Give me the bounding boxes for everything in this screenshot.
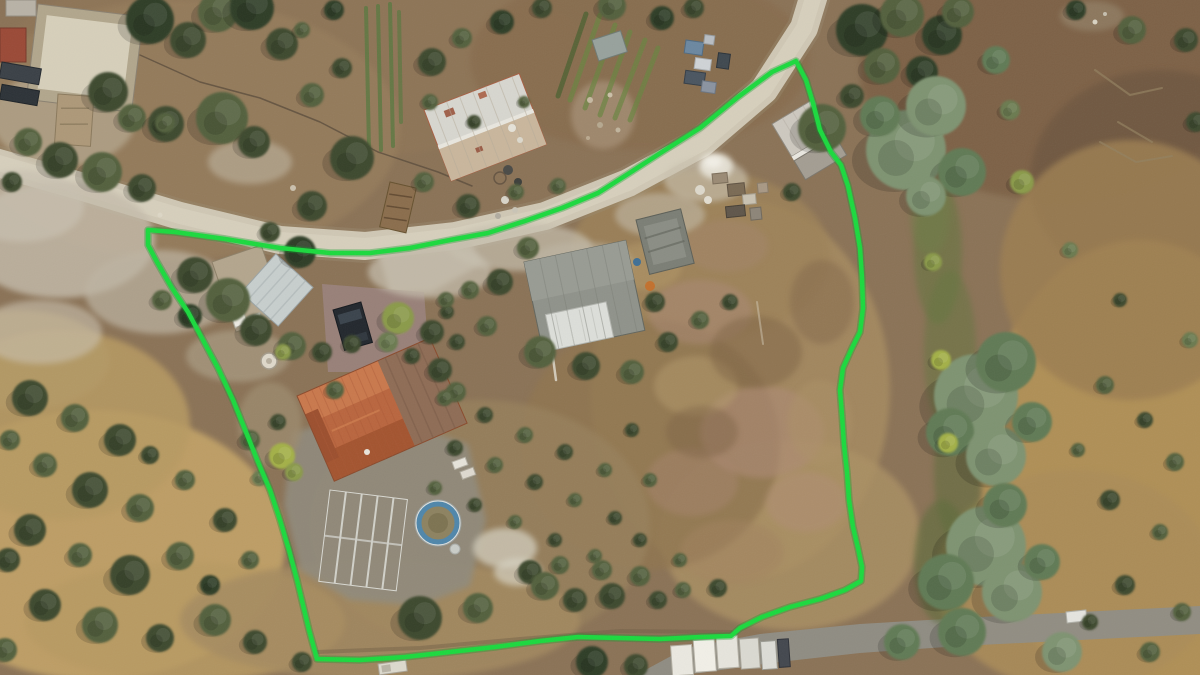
photo-grain-overlay — [0, 0, 1200, 675]
aerial-photo — [0, 0, 1200, 675]
aerial-photo-canvas — [0, 0, 1200, 675]
